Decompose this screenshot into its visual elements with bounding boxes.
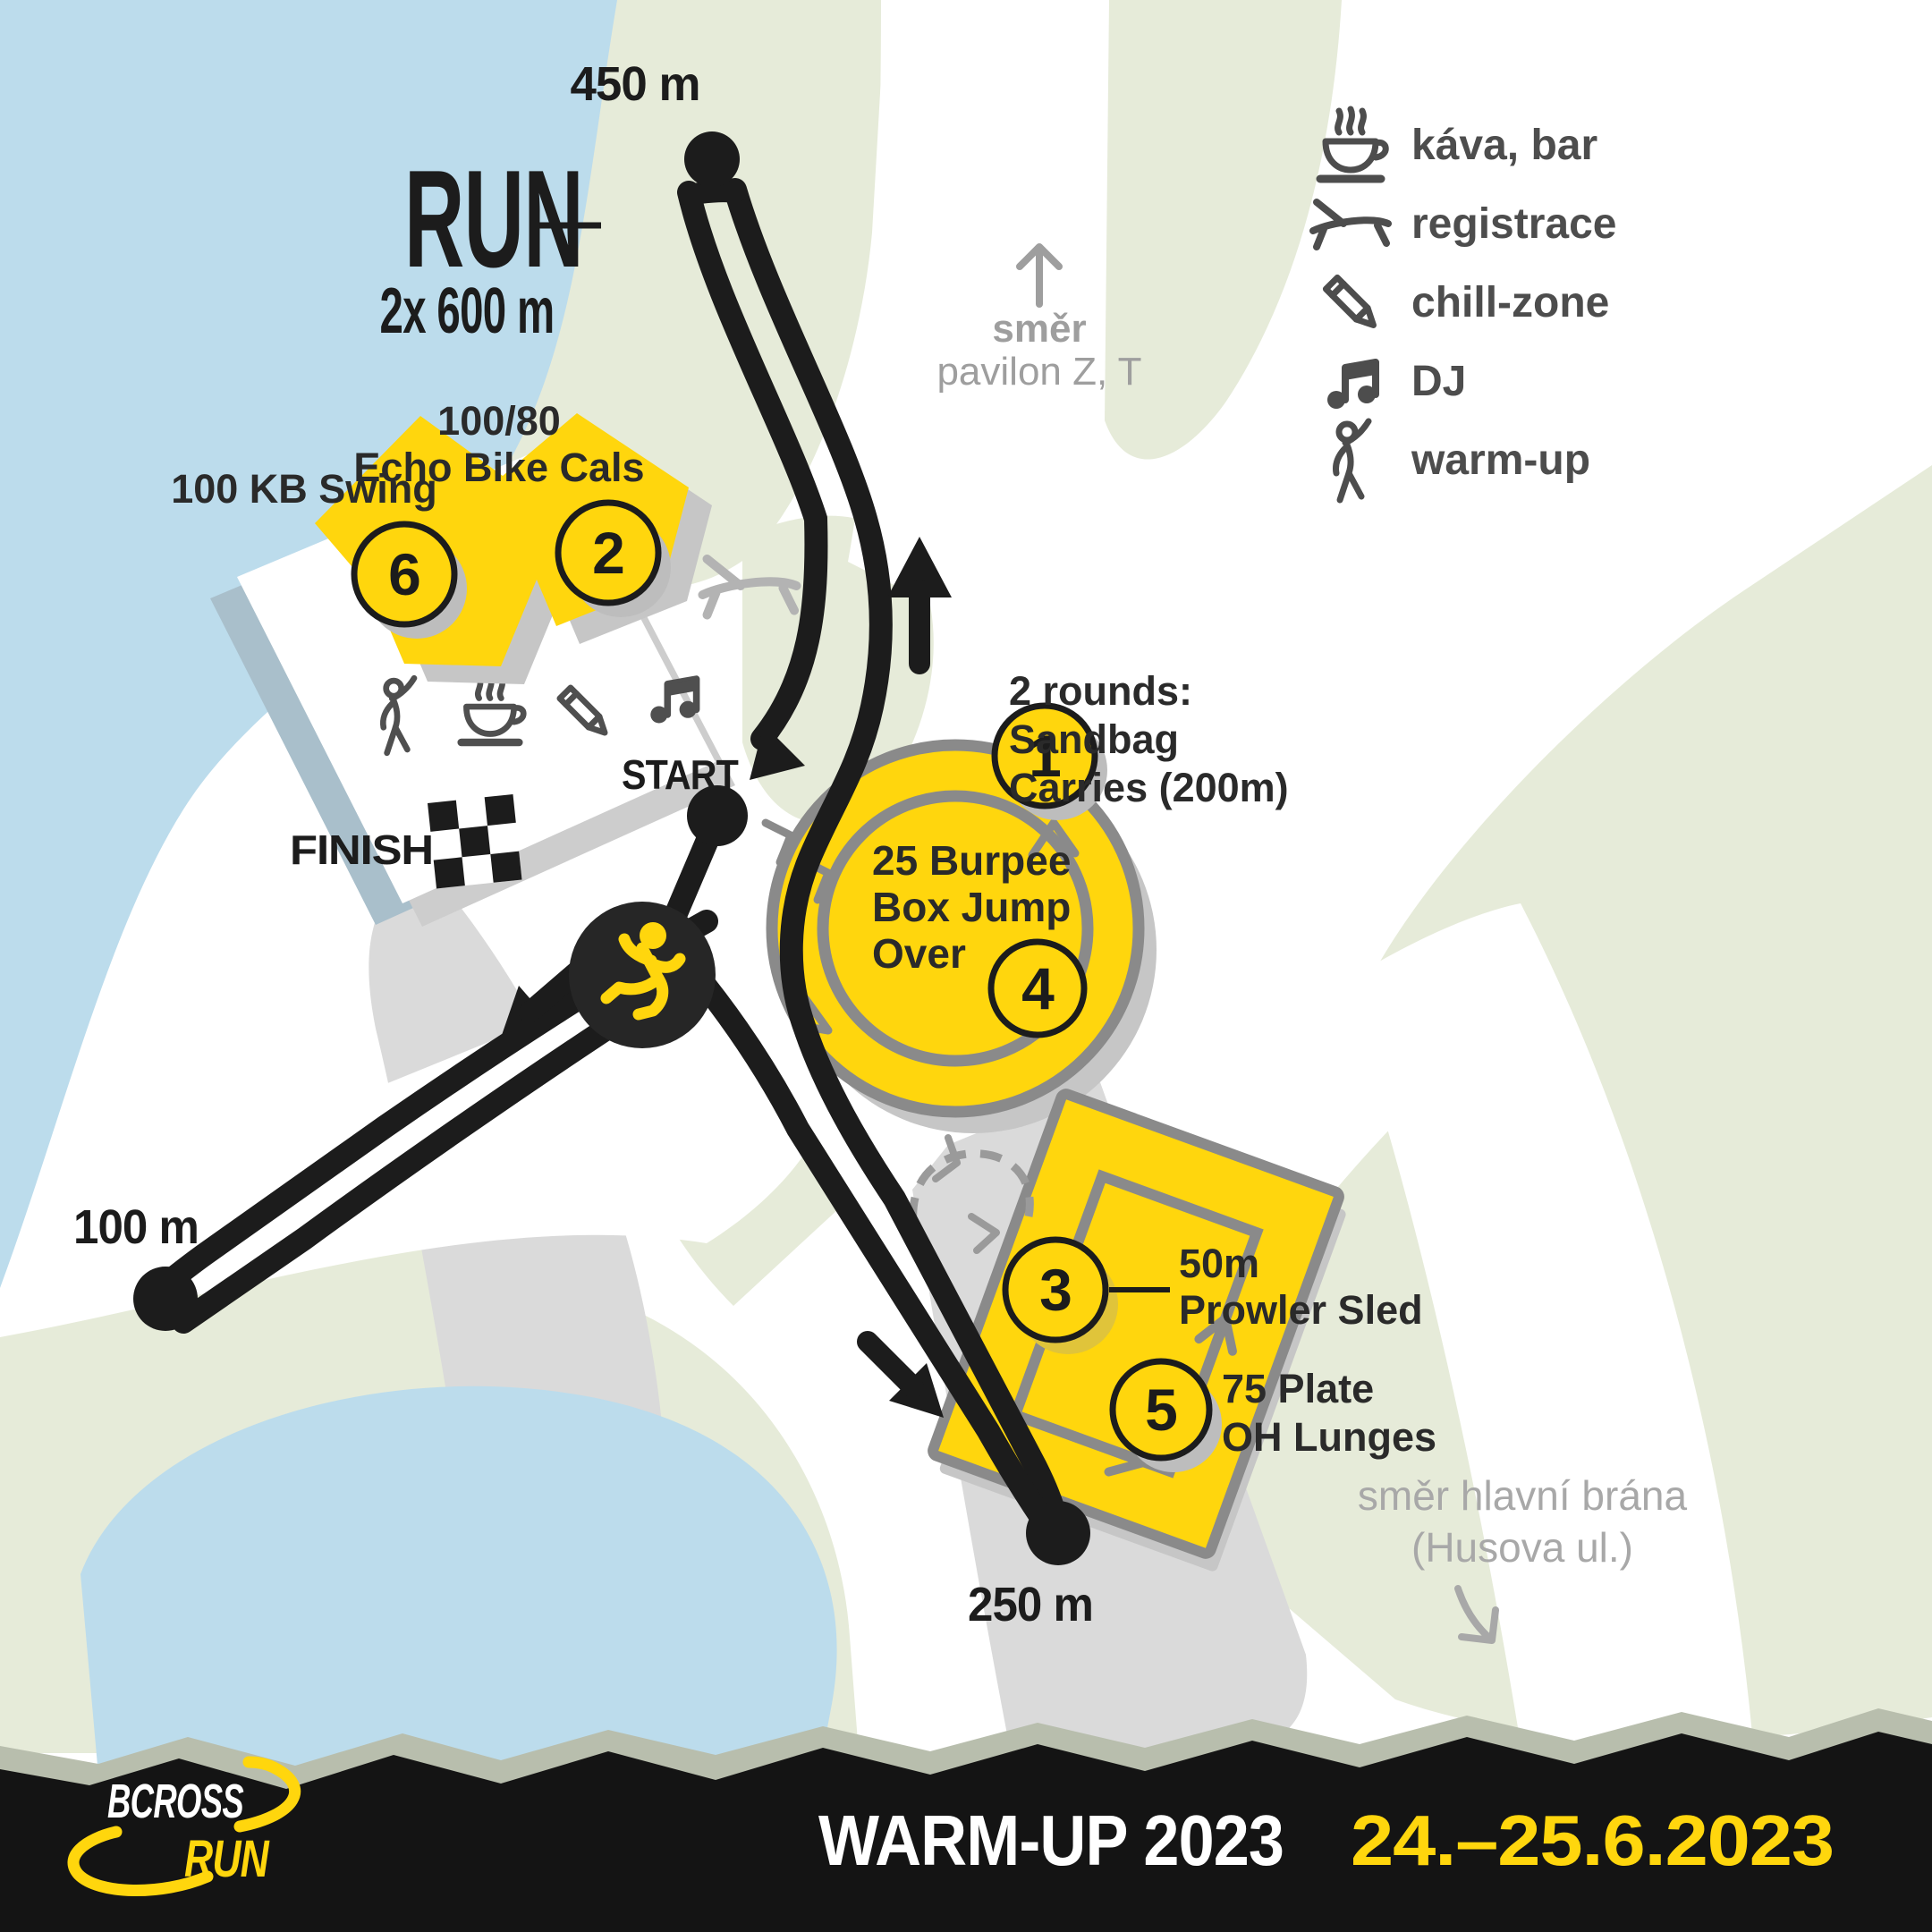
brand-name-line2: RUN [184,1830,270,1888]
pavilion-label-line1: směr [992,307,1086,351]
station-2-label-line1: 100/80 [437,398,561,444]
event-title: WARM-UP 2023 [818,1801,1284,1880]
turnpoint-100m [133,1267,198,1331]
station-4-label-line2: Box Jump [872,884,1071,930]
legend-label-chill-zone: chill-zone [1411,279,1609,326]
distance-100m: 100 m [73,1200,199,1254]
start-label: START [622,751,739,798]
event-date: 24.–25.6.2023 [1351,1801,1834,1880]
runner-badge [569,902,716,1048]
station-1-label-line3: Carries (200m) [1009,765,1289,810]
legend-label-dj: DJ [1411,358,1466,405]
gate-label-line2: (Husova ul.) [1411,1524,1633,1571]
station-1-label-line1: 2 rounds: [1009,668,1192,714]
station-5-label-line2: OH Lunges [1222,1414,1436,1460]
legend-label-kava-bar: káva, bar [1411,122,1597,169]
legend-label-warm-up: warm-up [1411,436,1590,484]
turnpoint-250m [1026,1501,1090,1565]
station-5-number: 5 [1145,1377,1177,1443]
station-4-label-line1: 25 Burpee [872,837,1071,884]
station-6-number: 6 [388,541,420,607]
runner-badge-circle [569,902,716,1048]
distance-450m: 450 m [571,57,700,111]
course-north-cap [689,191,735,195]
brand-name-line1: BCROSS [107,1775,244,1828]
run-subtitle: 2x 600 m [380,275,555,347]
station-6-label: 100 KB Swing [171,466,437,512]
station-1-label-line2: Sandbag [1009,716,1179,762]
station-3-label-line1: 50m [1179,1241,1259,1286]
event-course-map: 1 2 3 4 5 6 RUN 2x 600 m [0,0,1932,1932]
pavilion-label-line2: pavilon Z, T [936,350,1141,394]
gate-label-line1: směr hlavní brána [1358,1472,1688,1519]
turnpoint-450m [684,131,740,187]
station-marker-4: 4 [991,942,1084,1035]
finish-label: FINISH [290,826,433,873]
station-2-number: 2 [592,520,624,586]
legend-label-registrace: registrace [1411,200,1616,248]
distance-250m: 250 m [968,1578,1093,1631]
finish-flag-icon [428,794,522,889]
station-5-label-line1: 75 Plate [1222,1366,1374,1411]
station-3-number: 3 [1039,1257,1072,1323]
station-4-label-line3: Over [872,930,966,977]
station-3-label-line2: Prowler Sled [1179,1287,1423,1333]
station-4-number: 4 [1021,955,1055,1021]
run-title: RUN [404,141,583,296]
